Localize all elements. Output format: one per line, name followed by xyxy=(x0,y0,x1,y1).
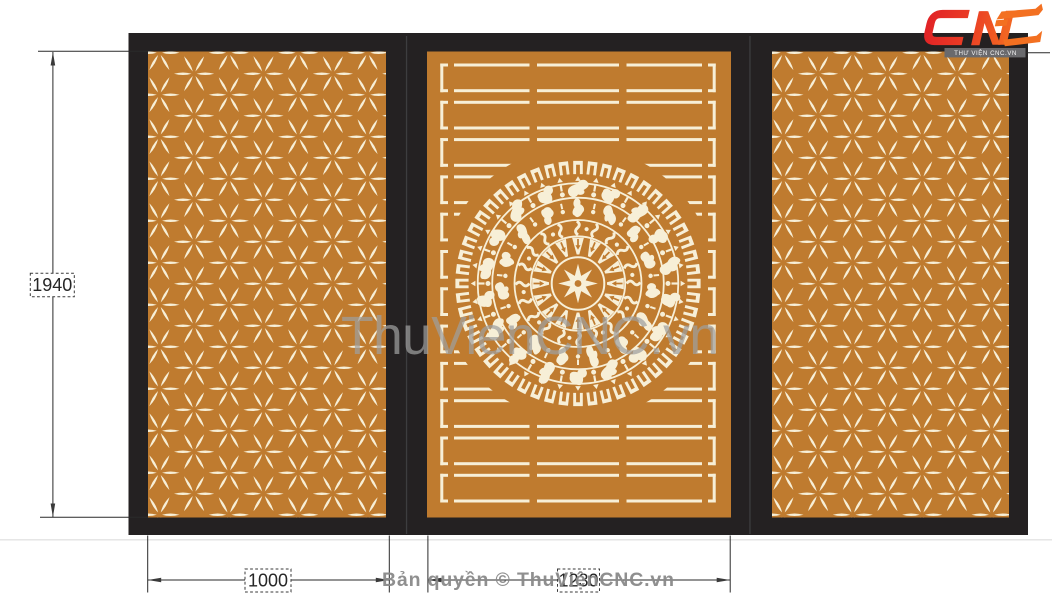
svg-text:ThuVienCNC.vn: ThuVienCNC.vn xyxy=(341,307,719,366)
svg-text:1940: 1940 xyxy=(32,275,72,295)
svg-text:THƯ VIỆN CNC.VN: THƯ VIỆN CNC.VN xyxy=(954,49,1017,57)
svg-text:1000: 1000 xyxy=(248,571,288,591)
svg-text:Bản quyền © ThuViệnCNC.vn: Bản quyền © ThuViệnCNC.vn xyxy=(382,569,674,591)
